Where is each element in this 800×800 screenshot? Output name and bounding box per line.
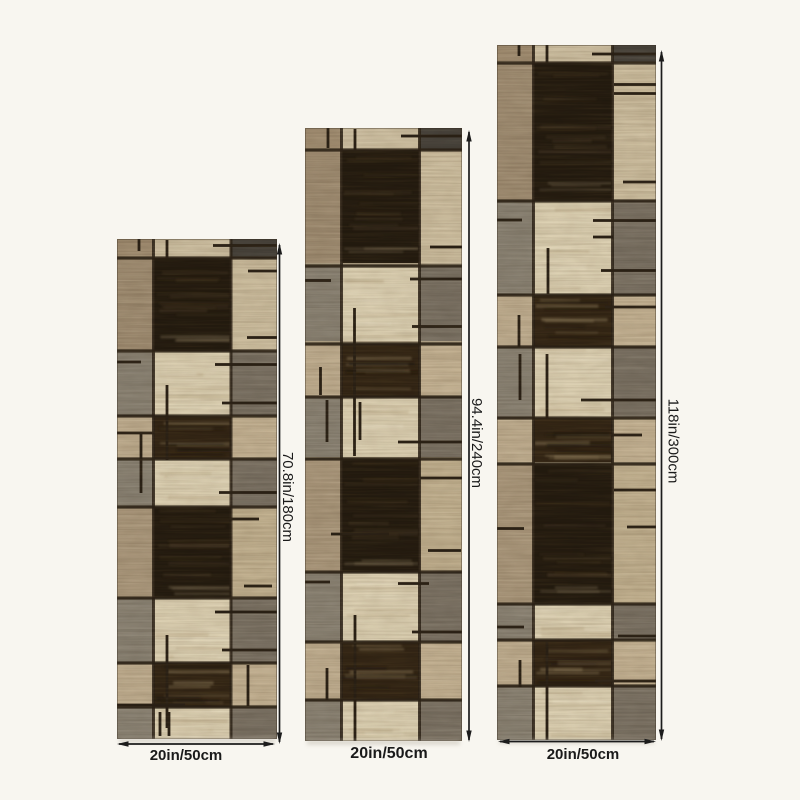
svg-text:118in/300cm: 118in/300cm (665, 399, 682, 484)
svg-text:94.4in/240cm: 94.4in/240cm (468, 398, 485, 488)
svg-text:20in/50cm: 20in/50cm (547, 746, 620, 763)
svg-text:20in/50cm: 20in/50cm (150, 747, 223, 764)
svg-text:70.8in/180cm: 70.8in/180cm (279, 452, 296, 542)
svg-text:20in/50cm: 20in/50cm (350, 745, 427, 762)
